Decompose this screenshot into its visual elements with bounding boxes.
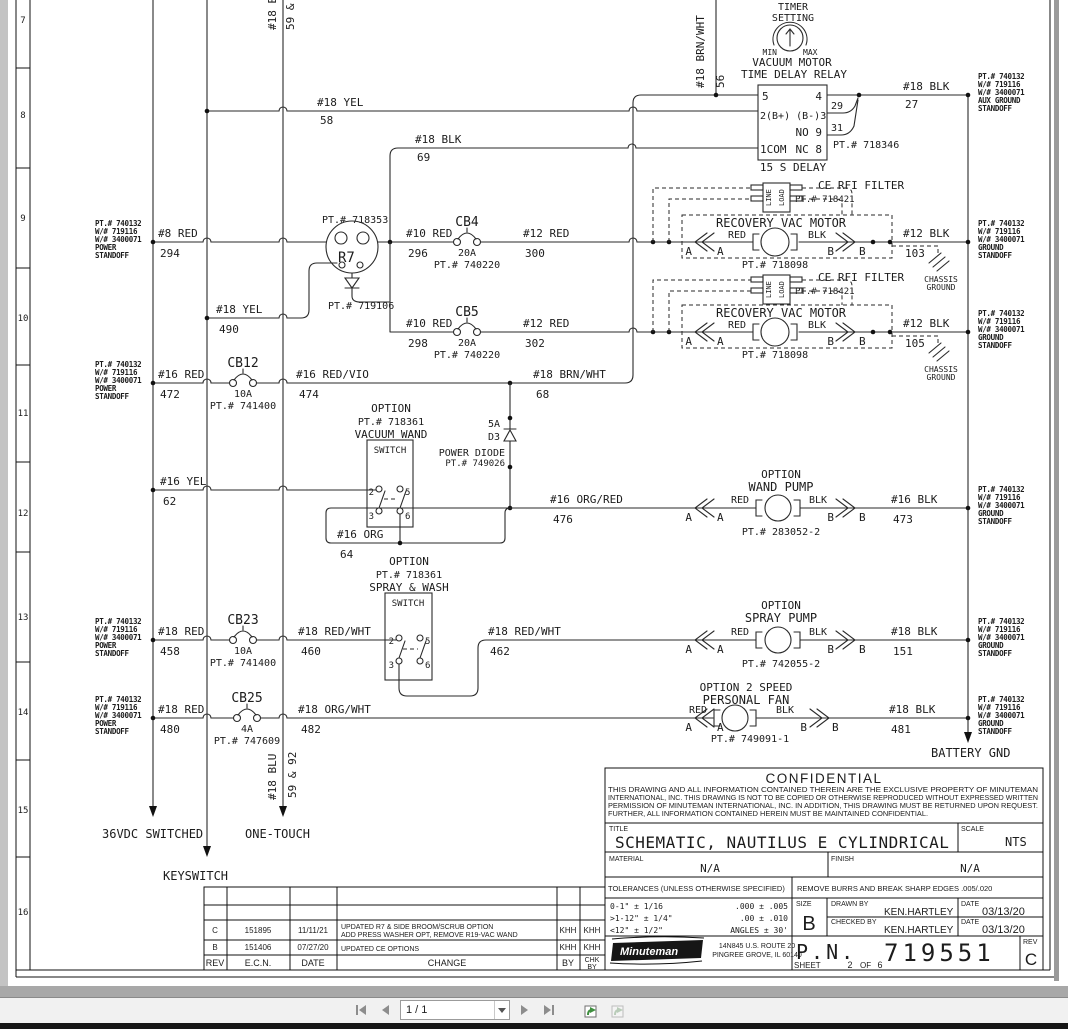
tolerance-row: >1-12" ± 1/4" bbox=[610, 914, 673, 923]
scale-value: NTS bbox=[1005, 835, 1027, 849]
wire-number: 68 bbox=[536, 388, 549, 401]
connector-label: B bbox=[827, 335, 834, 348]
spray-wash-switch: OPTION PT.# 718361 SPRAY & WASH SWITCH 2… bbox=[369, 555, 448, 680]
component-label: R7 bbox=[338, 250, 355, 266]
standoff-label: STANDOFF bbox=[95, 392, 130, 401]
wire-label: #18 BLK bbox=[903, 80, 950, 93]
field-label: FINISH bbox=[831, 856, 854, 863]
border-row-label: 8 bbox=[20, 111, 25, 121]
wire-number: 64 bbox=[340, 548, 354, 561]
connector-label: B bbox=[859, 245, 866, 258]
part-number: PT.# 741400 bbox=[210, 401, 276, 412]
wire-label: #12 RED bbox=[523, 317, 569, 330]
breaker-cb25: CB25 4A PT.# 747609 bbox=[214, 691, 280, 747]
standoff-label: STANDOFF bbox=[978, 104, 1013, 113]
rev-row-cell: 151895 bbox=[245, 926, 272, 935]
connector-label: A bbox=[685, 643, 692, 656]
part-number: PT.# 718353 bbox=[322, 215, 388, 226]
wire-number: 294 bbox=[160, 247, 180, 260]
wire-label: #16 YEL bbox=[160, 475, 207, 488]
wire-color-label: BLK bbox=[809, 495, 827, 506]
prev-page-icon bbox=[378, 1002, 392, 1018]
rev-row-cell: 11/11/21 bbox=[298, 926, 329, 935]
power-diode-d3: 5A D3 POWER DIODE PT.# 749026 bbox=[439, 383, 516, 510]
page-number-input[interactable] bbox=[401, 1001, 494, 1019]
wire-label: #18 BLU bbox=[266, 0, 279, 30]
border-row-label: 12 bbox=[18, 509, 29, 519]
connector-label: B bbox=[800, 721, 807, 734]
rail-label-keyswitch: KEYSWITCH bbox=[163, 869, 228, 883]
relay-tap: 31 bbox=[831, 123, 843, 134]
wire-number: 296 bbox=[408, 247, 428, 260]
sheet-number: 2 bbox=[847, 960, 852, 970]
filter-load-label: LOAD bbox=[778, 281, 786, 298]
connector-label: A bbox=[685, 335, 692, 348]
tolerance-row: ANGLES ± 30' bbox=[730, 926, 788, 935]
wire-label: #18 RED/WHT bbox=[298, 625, 371, 638]
wire-color-label: RED bbox=[731, 495, 749, 506]
component-label: SPRAY PUMP bbox=[745, 611, 817, 625]
border-row-label: 11 bbox=[18, 409, 29, 419]
material-value: N/A bbox=[700, 862, 720, 875]
switch-pin: 5 bbox=[425, 637, 430, 647]
part-number: PT.# 718421 bbox=[795, 195, 855, 205]
time-delay-relay: TIMER SETTING MIN MAX VACUUM MOTOR TIME … bbox=[205, 2, 971, 383]
switch-label: SWITCH bbox=[392, 599, 425, 609]
rev-table-header: BY bbox=[562, 958, 574, 968]
confidential-heading: CONFIDENTIAL bbox=[765, 771, 882, 786]
part-number-value: 719551 bbox=[884, 939, 995, 967]
connector-label: A bbox=[685, 511, 692, 524]
wire-number: 59 & 92 bbox=[284, 0, 297, 30]
connector-label: A bbox=[717, 245, 724, 258]
prev-page-button[interactable] bbox=[377, 1000, 393, 1020]
wire-color-label: BLK bbox=[808, 320, 826, 331]
wire-color-label: BLK bbox=[808, 230, 826, 241]
breaker-cb4: CB4 20A PT.# 740220 bbox=[434, 215, 500, 271]
component-label: RECOVERY VAC MOTOR bbox=[716, 306, 847, 320]
wire-number: 476 bbox=[553, 513, 573, 526]
relay-tap: 29 bbox=[831, 101, 843, 112]
wire-number: 298 bbox=[408, 337, 428, 350]
wire-label: #12 RED bbox=[523, 227, 569, 240]
tolerance-row: <12" ± 1/2" bbox=[610, 926, 663, 935]
standoff-label: STANDOFF bbox=[978, 517, 1013, 526]
border-row-label: 7 bbox=[20, 16, 25, 26]
chassis-ground-label: GROUND bbox=[927, 373, 956, 382]
breaker-rating: 10A bbox=[234, 389, 252, 400]
minuteman-logo: Minuteman bbox=[610, 937, 704, 964]
rev-row-cell: ADD PRESS WASHER OPT, REMOVE R19-VAC WAN… bbox=[341, 932, 518, 939]
switch-pin: 6 bbox=[425, 661, 430, 671]
switch-pin: 5 bbox=[405, 488, 410, 498]
revision-value: C bbox=[1025, 950, 1037, 969]
content-bottom-band bbox=[0, 986, 1068, 997]
cb23-spray-pump-row: PT.# 740132 W/# 719116 W/# 3400071 POWER… bbox=[95, 599, 1025, 696]
rev-table-header: DATE bbox=[301, 958, 324, 968]
wand-pump-row: #16 ORG/RED 476 OPTION WAND PUMP A A RED… bbox=[331, 468, 1025, 538]
part-number: PT.# 718098 bbox=[742, 350, 808, 361]
wire-number: 27 bbox=[905, 98, 918, 111]
part-number: PT.# 749091-1 bbox=[711, 734, 789, 745]
connector-label: A bbox=[717, 335, 724, 348]
wire-label: #18 BRN/WHT bbox=[533, 368, 606, 381]
connector-label: B bbox=[827, 643, 834, 656]
rev-row-cell: KHH bbox=[584, 926, 601, 935]
wire-label: #18 BLU bbox=[266, 754, 279, 800]
wire-number: 151 bbox=[893, 645, 913, 658]
wire-label: #16 BLK bbox=[891, 493, 938, 506]
standoff-label: STANDOFF bbox=[978, 727, 1013, 736]
component-label: CE RFI FILTER bbox=[818, 179, 904, 192]
confidential-text: PERMISSION OF MINUTEMAN INTERNATIONAL, I… bbox=[608, 803, 1038, 810]
size-value: B bbox=[802, 913, 815, 935]
drawing-title: SCHEMATIC, NAUTILUS E CYLINDRICAL bbox=[615, 833, 949, 852]
wire-number: 481 bbox=[891, 723, 911, 736]
last-page-button[interactable] bbox=[540, 1000, 558, 1020]
standoff-label: STANDOFF bbox=[978, 251, 1013, 260]
field-label: DATE bbox=[961, 919, 979, 926]
part-number: PT.# 283052-2 bbox=[742, 527, 820, 538]
confidential-text: FURTHER, ALL INFORMATION CONTAINED HEREI… bbox=[608, 811, 928, 818]
rev-row-cell: B bbox=[212, 943, 217, 952]
wire-label: #18 YEL bbox=[216, 303, 263, 316]
rev-row-cell: UPDATED CE OPTIONS bbox=[341, 946, 419, 953]
component-label: POWER DIODE bbox=[439, 448, 505, 459]
drawn-by-value: KEN.HARTLEY bbox=[884, 907, 954, 918]
part-number: PT.# 718098 bbox=[742, 260, 808, 271]
standoff-label: STANDOFF bbox=[978, 341, 1013, 350]
wire-label: #18 ORG/WHT bbox=[298, 703, 371, 716]
tolerance-row: 0-1" ± 1/16 bbox=[610, 902, 663, 911]
border-row-label: 15 bbox=[18, 806, 29, 816]
border-row-label: 9 bbox=[20, 214, 25, 224]
wire-number: 300 bbox=[525, 247, 545, 260]
filter-load-label: LOAD bbox=[778, 189, 786, 206]
rev-table-header: CHK bbox=[585, 957, 600, 964]
rev-row-cell: KHH bbox=[560, 926, 577, 935]
connector-label: B bbox=[859, 643, 866, 656]
wire-label: #18 RED bbox=[158, 625, 204, 638]
previous-view-icon bbox=[581, 1002, 599, 1019]
company-name: Minuteman bbox=[620, 946, 678, 958]
rail-label-36vdc: 36VDC SWITCHED bbox=[102, 827, 203, 841]
component-label: RECOVERY VAC MOTOR bbox=[716, 216, 847, 230]
breaker-rating: 20A bbox=[458, 338, 476, 349]
burrs-note: REMOVE BURRS AND BREAK SHARP EDGES .005/… bbox=[797, 884, 992, 893]
page-dropdown-caret[interactable] bbox=[494, 1001, 509, 1019]
field-label: TITLE bbox=[609, 826, 628, 833]
breaker-cb12: CB12 10A PT.# 741400 bbox=[210, 356, 276, 412]
border-row-label: 10 bbox=[18, 314, 29, 324]
rev-row-cell: C bbox=[212, 926, 218, 935]
rev-row-cell: KHH bbox=[584, 943, 601, 952]
relay-title: TIME DELAY RELAY bbox=[741, 68, 847, 81]
next-view-button[interactable] bbox=[607, 1000, 627, 1020]
checked-date-value: 03/13/20 bbox=[982, 924, 1025, 936]
first-page-icon bbox=[353, 1002, 369, 1018]
wire-number: 473 bbox=[893, 513, 913, 526]
component-label: WAND PUMP bbox=[748, 480, 813, 494]
rail-label-battery-gnd: BATTERY GND bbox=[931, 746, 1010, 760]
relay-delay-label: 15 S DELAY bbox=[760, 161, 827, 174]
wire-label: #16 ORG bbox=[337, 528, 383, 541]
power-rails: 36VDC SWITCHED ONE-TOUCH KEYSWITCH BATTE… bbox=[102, 0, 1010, 883]
switch-pin: 3 bbox=[369, 512, 374, 522]
wire-number: 462 bbox=[490, 645, 510, 658]
drawn-date-value: 03/13/20 bbox=[982, 906, 1025, 918]
confidential-text: THIS DRAWING AND ALL INFORMATION CONTAIN… bbox=[608, 787, 1038, 794]
wire-number: 460 bbox=[301, 645, 321, 658]
checked-by-value: KEN.HARTLEY bbox=[884, 925, 954, 936]
field-label: DATE bbox=[961, 901, 979, 908]
previous-view-button[interactable] bbox=[580, 1000, 600, 1020]
standoff-label: STANDOFF bbox=[978, 649, 1013, 658]
connector-label: B bbox=[827, 511, 834, 524]
option-label: OPTION bbox=[389, 555, 429, 568]
switch-pin: 6 bbox=[405, 512, 410, 522]
wire-label: #12 BLK bbox=[903, 317, 950, 330]
field-label: SCALE bbox=[961, 826, 984, 833]
connector-label: B bbox=[859, 511, 866, 524]
schematic-drawing: 7 8 9 10 11 12 13 14 15 16 36VDC SWITCHE… bbox=[0, 0, 1068, 988]
wire-number: 474 bbox=[299, 388, 319, 401]
cb4-row: PT.# 740132 W/# 719116 W/# 3400071 POWER… bbox=[95, 215, 1025, 312]
part-number: PT.# 718421 bbox=[795, 287, 855, 297]
part-number: PT.# 718361 bbox=[376, 570, 442, 581]
relay-pin: 5 bbox=[762, 90, 769, 103]
part-number: PT.# 742055-2 bbox=[742, 659, 820, 670]
switch-label: SWITCH bbox=[374, 446, 407, 456]
timer-label: TIMER bbox=[778, 2, 809, 13]
option-label: OPTION bbox=[371, 402, 411, 415]
finish-value: N/A bbox=[960, 862, 980, 875]
last-page-icon bbox=[541, 1002, 557, 1018]
sheet-of-label: OF bbox=[860, 961, 871, 970]
wire-number: 59 & 92 bbox=[286, 752, 299, 798]
diode-rating: 5A bbox=[488, 419, 500, 430]
filter-line-label: LINE bbox=[765, 189, 773, 206]
field-label: MATERIAL bbox=[609, 856, 644, 863]
wire-label: #18 BLK bbox=[889, 703, 936, 716]
component-label: D3 bbox=[488, 432, 500, 443]
breaker-cb23: CB23 10A PT.# 741400 bbox=[210, 613, 276, 669]
aux-ground-standoff: PT.# 740132 W/# 719116 W/# 3400071 AUX G… bbox=[978, 72, 1025, 113]
component-label: SPRAY & WASH bbox=[369, 581, 448, 594]
wire-color-label: RED bbox=[689, 705, 707, 716]
connector-label: A bbox=[685, 245, 692, 258]
breaker-rating: 10A bbox=[234, 646, 252, 657]
chassis-ground-label: GROUND bbox=[927, 283, 956, 292]
field-label: SIZE bbox=[796, 901, 812, 908]
wire-color-label: RED bbox=[728, 230, 746, 241]
next-page-icon bbox=[518, 1002, 532, 1018]
sheet-total: 6 bbox=[877, 960, 882, 970]
wire-number: 62 bbox=[163, 495, 176, 508]
relay-pin: 2(B+) (B-)3 bbox=[760, 111, 826, 122]
wire-label: #16 RED/VIO bbox=[296, 368, 369, 381]
rev-row-cell: UPDATED R7 & SIDE BROOM/SCRUB OPTION bbox=[341, 924, 493, 931]
connector-label: A bbox=[685, 721, 692, 734]
company-address: PINGREE GROVE, IL 60140 bbox=[712, 952, 802, 959]
wire-label: #8 RED bbox=[158, 227, 198, 240]
pdf-viewer-window: 7 8 9 10 11 12 13 14 15 16 36VDC SWITCHE… bbox=[0, 0, 1068, 1029]
standoff-label: STANDOFF bbox=[95, 649, 130, 658]
part-number: PT.# 747609 bbox=[214, 736, 280, 747]
wire-number: 302 bbox=[525, 337, 545, 350]
rev-table-header: REV bbox=[206, 958, 225, 968]
cb25-personal-fan-row: PT.# 740132 W/# 719116 W/# 3400071 POWER… bbox=[95, 681, 1025, 747]
window-bottom-strip bbox=[0, 1023, 1068, 1029]
rev-table-header: CHANGE bbox=[428, 958, 467, 968]
wire-number: 105 bbox=[905, 337, 925, 350]
next-view-icon bbox=[608, 1002, 626, 1019]
wire-label: #16 ORG/RED bbox=[550, 493, 623, 506]
wire-number: 103 bbox=[905, 247, 925, 260]
part-number: PT.# 740220 bbox=[434, 350, 500, 361]
component-label: CE RFI FILTER bbox=[818, 271, 904, 284]
tolerance-row: .000 ± .005 bbox=[735, 902, 788, 911]
border-row-label: 14 bbox=[18, 708, 29, 718]
wire-label: #10 RED bbox=[406, 227, 452, 240]
breaker-rating: 20A bbox=[458, 248, 476, 259]
part-number: PT.# 719106 bbox=[328, 301, 394, 312]
rev-table-header: E.C.N. bbox=[245, 958, 272, 968]
standoff-label: STANDOFF bbox=[95, 727, 130, 736]
company-address: 14N845 U.S. ROUTE 20 bbox=[719, 943, 795, 950]
wire-label: #18 RED/WHT bbox=[488, 625, 561, 638]
wire-label: #10 RED bbox=[406, 317, 452, 330]
wire-label: #16 RED bbox=[158, 368, 204, 381]
wire-label: #12 BLK bbox=[903, 227, 950, 240]
wire-number: 480 bbox=[160, 723, 180, 736]
wire-label: #18 BLK bbox=[891, 625, 938, 638]
vacuum-wand-switch: OPTION PT.# 718361 VACUUM WAND SWITCH 2 … bbox=[151, 402, 510, 561]
border-row-label: 16 bbox=[18, 908, 29, 918]
tolerance-row: .00 ± .010 bbox=[740, 914, 788, 923]
filter-line-label: LINE bbox=[765, 281, 773, 298]
wire-label: #18 BLK bbox=[415, 133, 462, 146]
component-label: VACUUM WAND bbox=[355, 428, 428, 441]
part-number: PT.# 740220 bbox=[434, 260, 500, 271]
title-block: CONFIDENTIAL THIS DRAWING AND ALL INFORM… bbox=[605, 768, 1043, 970]
rev-table-header: BY bbox=[587, 964, 597, 971]
page-number-box[interactable] bbox=[400, 1000, 510, 1020]
connector-label: B bbox=[832, 721, 839, 734]
rev-row-cell: KHH bbox=[560, 943, 577, 952]
wire-number: 56 bbox=[714, 75, 727, 88]
wire-label: #18 BRN/WHT bbox=[694, 15, 707, 88]
document-page: 7 8 9 10 11 12 13 14 15 16 36VDC SWITCHE… bbox=[0, 0, 1068, 988]
wire-label: #18 RED bbox=[158, 703, 204, 716]
breaker-rating: 4A bbox=[241, 724, 253, 735]
relay-pin: NO 9 bbox=[796, 126, 823, 139]
window-left-edge bbox=[0, 0, 8, 988]
wire-number: 472 bbox=[160, 388, 180, 401]
standoff-label: STANDOFF bbox=[95, 251, 130, 260]
connector-label: A bbox=[717, 511, 724, 524]
connector-label: A bbox=[717, 643, 724, 656]
next-page-button[interactable] bbox=[517, 1000, 533, 1020]
wire-color-label: BLK bbox=[776, 705, 794, 716]
sheet-label: SHEET bbox=[794, 961, 821, 970]
wire-number: 58 bbox=[320, 114, 333, 127]
relay-pin: 1COM bbox=[760, 143, 787, 156]
field-label: CHECKED BY bbox=[831, 919, 877, 926]
rev-row-cell: 151406 bbox=[245, 943, 272, 952]
part-number: PT.# 749026 bbox=[445, 459, 505, 469]
switch-pin: 3 bbox=[389, 661, 394, 671]
wire-number: 490 bbox=[219, 323, 239, 336]
switch-pin: 2 bbox=[389, 637, 394, 647]
border-row-label: 13 bbox=[18, 613, 29, 623]
cb12-row: #18 YEL 490 PT.# 740132 W/# 719116 W/# 3… bbox=[95, 263, 625, 412]
revision-table: C 151895 11/11/21 UPDATED R7 & SIDE BROO… bbox=[204, 887, 605, 971]
relay-pin: NC 8 bbox=[796, 143, 823, 156]
part-number: PT.# 741400 bbox=[210, 658, 276, 669]
part-number: PT.# 718361 bbox=[358, 417, 424, 428]
wire-number: 482 bbox=[301, 723, 321, 736]
field-label: DRAWN BY bbox=[831, 901, 869, 908]
connector-label: B bbox=[827, 245, 834, 258]
chevron-down-icon bbox=[498, 1007, 506, 1013]
part-number: PT.# 718346 bbox=[833, 140, 899, 151]
viewer-toolbar bbox=[0, 997, 1068, 1024]
wire-color-label: RED bbox=[731, 627, 749, 638]
confidential-text: INTERNATIONAL, INC. THIS DRAWING IS NOT … bbox=[608, 795, 1038, 802]
breaker-cb5: CB5 20A PT.# 740220 bbox=[434, 305, 500, 361]
rail-label-one-touch: ONE-TOUCH bbox=[245, 827, 310, 841]
field-label: REV bbox=[1023, 939, 1038, 946]
wire-color-label: RED bbox=[728, 320, 746, 331]
first-page-button[interactable] bbox=[352, 1000, 370, 1020]
rev-row-cell: 07/27/20 bbox=[297, 943, 329, 952]
relay-pin: 4 bbox=[815, 90, 822, 103]
wire-number: 458 bbox=[160, 645, 180, 658]
wire-label: #18 YEL bbox=[317, 96, 364, 109]
wire-number: 69 bbox=[417, 151, 430, 164]
wire-color-label: BLK bbox=[809, 627, 827, 638]
connector-label: B bbox=[859, 335, 866, 348]
tolerances-header: TOLERANCES (UNLESS OTHERWISE SPECIFIED) bbox=[608, 884, 785, 893]
